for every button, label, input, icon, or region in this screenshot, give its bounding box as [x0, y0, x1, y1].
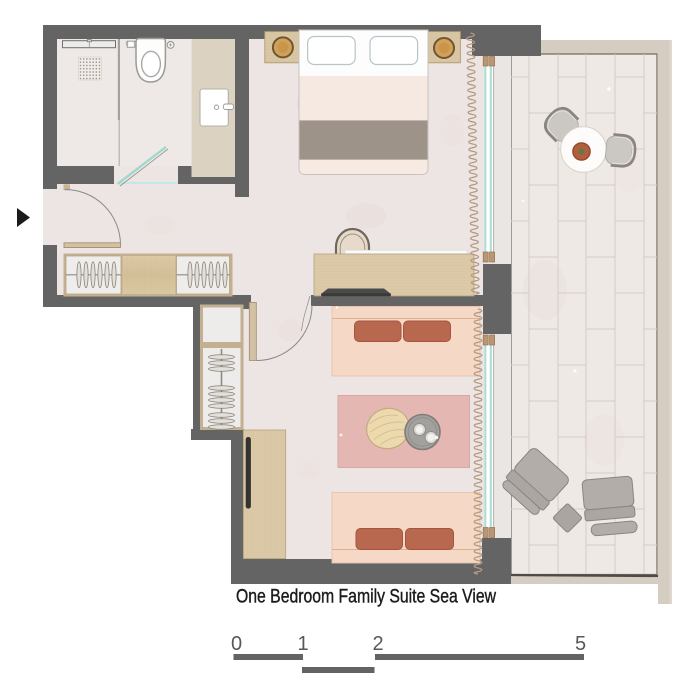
svg-text:One Bedroom Family Suite Sea V: One Bedroom Family Suite Sea View: [236, 587, 496, 608]
svg-text:2: 2: [372, 633, 383, 655]
svg-text:0: 0: [231, 633, 242, 655]
svg-text:5: 5: [575, 633, 586, 655]
svg-text:1: 1: [297, 633, 308, 655]
